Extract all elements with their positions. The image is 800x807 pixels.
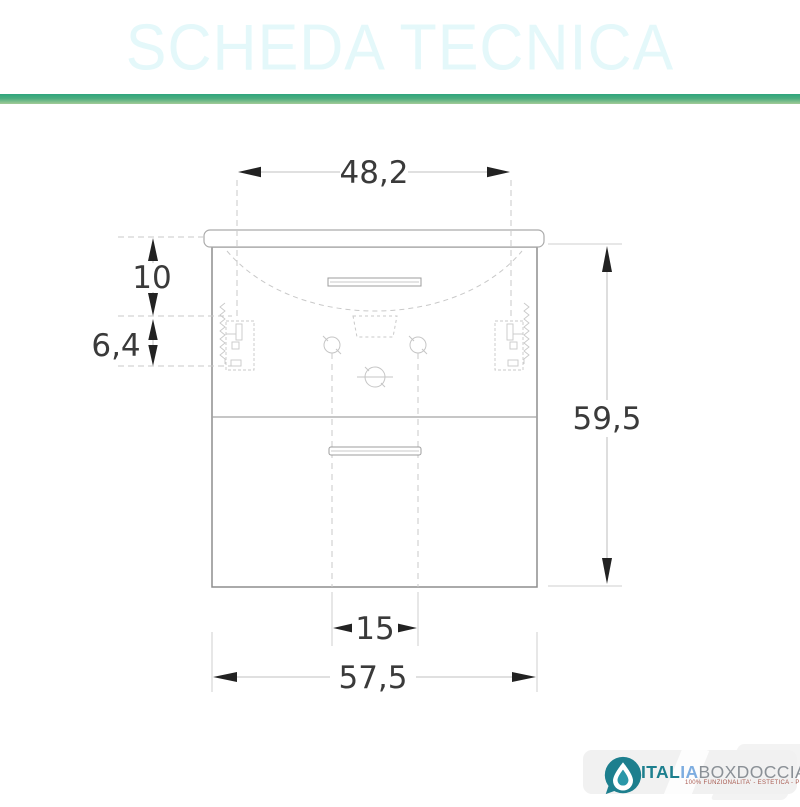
dim-total-height-label: 59,5 (572, 401, 641, 437)
dim-bracket-offset: 6,4 (91, 319, 157, 366)
drawer-handle (329, 447, 421, 455)
brand-logo: ITALIABOXDOCCIA 100% FUNZIONALITA' - EST… (575, 744, 800, 800)
dim-top-width: 48,2 (238, 155, 510, 191)
dim-basin-height-label: 10 (132, 260, 171, 296)
dim-total-height: 59,5 (548, 244, 642, 586)
dim-drain-spacing-label: 15 (355, 611, 394, 647)
dim-total-width-label: 57,5 (338, 660, 407, 696)
brand-text-primary: ITAL (641, 762, 680, 782)
dim-bracket-offset-label: 6,4 (91, 328, 140, 364)
brand-tagline: 100% FUNZIONALITA' - ESTETICA - PRATICIT… (685, 780, 800, 786)
overflow-slot (328, 278, 421, 286)
basin-top-slab (204, 230, 544, 247)
brand-text-rest: BOXDOCCIA (699, 762, 800, 782)
dim-drain-spacing: 15 (332, 592, 418, 647)
water-drop-icon (603, 756, 643, 796)
dim-top-width-label: 48,2 (339, 155, 408, 191)
dim-basin-height: 10 (132, 238, 171, 316)
brand-text-secondary: IA (680, 762, 698, 782)
technical-drawing: 48,2 10 6,4 59,5 15 (0, 0, 800, 800)
